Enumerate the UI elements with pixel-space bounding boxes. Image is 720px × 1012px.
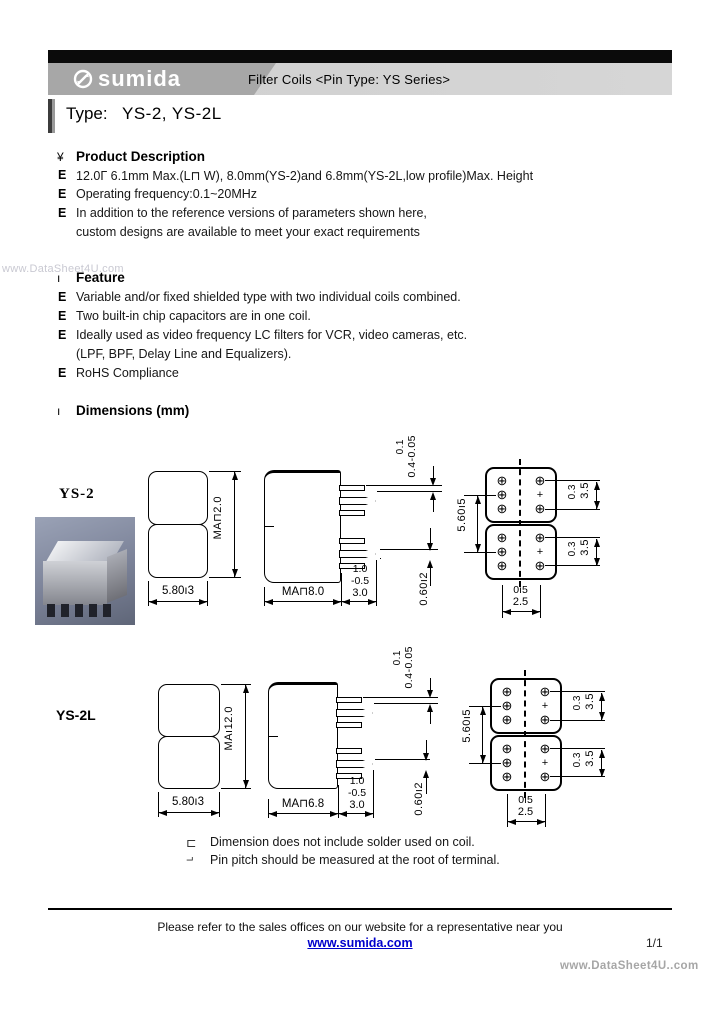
pin-marker-icon: ⊕ [500,685,514,698]
product-description-heading: ¥ Product Description [57,149,205,164]
dim-line-body-width [269,813,338,814]
ext-line [209,577,241,578]
watermark-bottom-right: www.DataSheet4U..com [560,960,699,972]
ys2-span-top: 3.5 [580,482,591,499]
dim-line [482,707,483,763]
dim-line [601,750,602,777]
dim-line-pitch [508,821,545,822]
pin-marker-icon: ⊕ [495,502,509,515]
ext-line [373,770,374,818]
sumida-logo-icon [72,68,94,95]
ys2-label: YS-2 [59,486,95,503]
arrowhead-up [427,704,433,712]
feature-text-5: RoHS Compliance [76,366,179,380]
arrowhead-up [427,560,433,568]
photo-front-face [43,561,107,605]
ys2l-span-top-tol: 0.3 [573,695,583,710]
dim-line-height [245,685,246,788]
ys2-front-width: 5.80ı3 [146,585,210,597]
pin-marker-icon: ⊕ [495,559,509,572]
ys2l-pitch-tol: 0ı5 [505,795,546,806]
bullet-icon: E [58,366,76,380]
bullet-icon [58,225,76,239]
ys2l-span-top: 3.5 [585,693,596,710]
bullet-icon: E [58,187,76,201]
photo-pin [47,604,55,617]
bullet-icon: E [58,206,76,220]
bullet-icon [58,347,76,361]
pd-text-1: 12.0Γ 6.1mm Max.(L⊓ W), 8.0mm(YS-2)and 6… [76,168,533,183]
section-title: Dimensions (mm) [76,403,189,418]
pd-text-2: Operating frequency:0.1~20MHz [76,187,257,201]
ys2l-front-height: MAı12.0 [224,706,235,750]
leader-line [430,568,431,586]
ext-line [545,480,600,481]
footer-message: Please refer to the sales offices on our… [0,920,720,934]
terminal-pin [339,510,365,516]
ext-line [469,763,501,764]
dim-line-body-width [265,601,341,602]
bullet-icon: E [58,168,76,183]
section-bullet-icon: ¥ [57,150,76,164]
ys2l-front-coil-bottom [158,736,220,789]
ys2-front-coil-top [148,471,208,525]
terminal-pin [339,538,365,544]
ys2-side-width: MA⊓8.0 [266,586,340,598]
ys2l-side-width: MA⊓6.8 [268,798,338,810]
dim-line [596,482,597,509]
dim-line-pitch [503,611,540,612]
header-banner: sumida Filter Coils <Pin Type: YS Series… [48,63,672,95]
type-label: Type: [66,104,108,124]
feature-line-2: ETwo built-in chip capacitors are in one… [58,309,311,323]
footer-divider [48,908,672,910]
feature-line-4: (LPF, BPF, Delay Line and Equalizers). [58,347,291,361]
ys2l-span-bot: 3.5 [585,750,596,767]
dim-line-pin-length [339,813,373,814]
ext-line [221,788,251,789]
note-1: ⊏ Dimension does not include solder used… [186,835,475,850]
pd-text-3: In addition to the reference versions of… [76,206,427,220]
ext-line [550,720,605,721]
leader-line [430,712,431,724]
arrowhead-down [430,478,436,486]
pin-marker-icon: ⊕ [500,770,514,783]
ys2-pitch-tol: 0ı5 [500,585,541,596]
terminal-pin [336,748,362,754]
dim-line-width [149,601,207,602]
pin-marker-icon: ⊕ [500,713,514,726]
coil-split-line [268,736,278,737]
pin-cross-icon: + [540,701,550,711]
component-photo [35,517,135,625]
ext-line [464,552,496,553]
ys2l-pin-len-plus: 1.0 [341,776,373,787]
dim-line [596,539,597,566]
bullet-icon: E [58,328,76,342]
pd-line-3: EIn addition to the reference versions o… [58,206,427,220]
ext-line [545,509,600,510]
dim-line [601,693,602,720]
photo-pin [89,604,97,617]
arrowhead-up [430,492,436,500]
pin-cross-icon: + [535,490,545,500]
type-accent-bar [48,99,55,133]
ys2-pin-thickness: 0.60ı2 [419,572,430,606]
feature-line-5: ERoHS Compliance [58,366,179,380]
ext-line [550,691,605,692]
pin-marker-icon: ⊕ [500,756,514,769]
pd-line-1: E12.0Γ 6.1mm Max.(L⊓ W), 8.0mm(YS-2)and … [58,168,533,183]
feature-heading: ı Feature [57,270,125,285]
note-bullet-glyph: ⌐ [186,853,193,867]
arrowhead-down [427,543,433,551]
ys2-pitch: 2.5 [500,597,541,609]
arrowhead-down [423,753,429,761]
section-bullet-icon: ı [57,404,76,418]
pin-marker-icon: ⊕ [500,699,514,712]
ys2l-pitch: 2.5 [505,807,546,819]
feature-text-2: Two built-in chip capacitors are in one … [76,309,311,323]
ext-line [380,558,381,559]
terminal-pin-pointed [336,709,373,717]
note-2-text: Pin pitch should be measured at the root… [210,853,500,867]
ext-line [545,565,600,566]
ys2l-pin-tol-lower: 0.4-0.05 [404,646,415,689]
dim-line-width [159,812,219,813]
section-title: Feature [76,270,125,285]
leader-line [433,500,434,512]
feature-text-4: (LPF, BPF, Delay Line and Equalizers). [76,347,291,361]
dim-line-pin-length [342,601,376,602]
feature-text-3: Ideally used as video frequency LC filte… [76,328,467,342]
ys2l-front-width: 5.80ı3 [156,796,220,808]
photo-pin [61,604,69,617]
pd-line-4: custom designs are available to meet you… [58,225,420,239]
terminal-pin [336,722,362,728]
section-bullet-icon: ı [57,271,76,285]
ys2l-span-bot-tol: 0.3 [573,752,583,767]
ys2-bottom-height: 5.60ı5 [457,498,468,532]
feature-text-1: Variable and/or fixed shielded type with… [76,290,461,304]
ys2l-pin-len-minus: -0.5 [341,788,373,799]
ext-line [550,776,605,777]
ys2l-bottom-height: 5.60ı5 [462,709,473,743]
ext-line [545,537,600,538]
header-top-bar [48,50,672,63]
page-number: 1/1 [646,936,663,950]
center-dashed-line [519,459,521,587]
pin-marker-icon: ⊕ [495,488,509,501]
note-2: ⌐ Pin pitch should be measured at the ro… [186,853,500,867]
ys2l-side-body [268,682,338,789]
product-line-title: Filter Coils <Pin Type: YS Series> [248,72,450,87]
ys2-pin-len-plus: 1.0 [344,564,376,575]
ext-line [550,748,605,749]
ext-line [376,560,377,606]
terminal-pin-pointed [339,497,376,505]
coil-split-line [264,526,274,527]
pd-text-4: custom designs are available to meet you… [76,225,420,239]
pin-cross-icon: + [540,758,550,768]
ys2l-label: YS-2L [56,707,96,723]
pin-marker-icon: ⊕ [495,474,509,487]
ys2-span-bot: 3.5 [580,539,591,556]
pd-line-2: EOperating frequency:0.1~20MHz [58,187,257,201]
ys2-span-top-tol: 0.3 [568,484,578,499]
terminal-pin [336,697,362,703]
pin-marker-icon: ⊕ [500,742,514,755]
brand-name: sumida [98,66,181,92]
bullet-icon: E [58,309,76,323]
dim-line-height [234,472,235,577]
photo-pin [103,604,111,617]
ys2-pin-len-minus: -0.5 [344,576,376,587]
sumida-website-link[interactable]: www.sumida.com [0,936,720,950]
arrowhead-down [427,690,433,698]
feature-line-3: EIdeally used as video frequency LC filt… [58,328,467,342]
note-bullet-icon: ⊏ [186,835,210,850]
pin-marker-icon: ⊕ [495,531,509,544]
type-value: YS-2, YS-2L [122,104,222,124]
terminal-pin [339,485,365,491]
ys2-pin-tol-lower: 0.4-0.05 [407,435,418,478]
bullet-icon: E [58,290,76,304]
photo-pin [75,604,83,617]
dim-line [477,496,478,552]
ys2l-pin-tol-upper: 0.1 [393,650,403,665]
ys2l-pin-thickness: 0.60ı2 [414,782,425,816]
note-1-text: Dimension does not include solder used o… [210,835,475,850]
ys2-pin-tol-upper: 0.1 [396,439,406,454]
note-bullet-icon: ⌐ [186,853,210,867]
ys2-side-body [264,470,341,583]
dimensions-heading: ı Dimensions (mm) [57,403,189,418]
arrowhead-up [423,770,429,778]
pin-cross-icon: + [535,547,545,557]
ys2l-front-coil-top [158,684,220,737]
pin-marker-icon: ⊕ [495,545,509,558]
ext-line [375,759,430,760]
center-dashed-line [524,670,526,798]
header-logo-block: sumida [48,63,276,95]
feature-line-1: EVariable and/or fixed shielded type wit… [58,290,461,304]
terminal-pin-pointed [336,760,373,768]
ys2-span-bot-tol: 0.3 [568,541,578,556]
ys2-front-coil-bottom [148,524,208,578]
terminal-pin-pointed [339,550,376,558]
ys2-front-height: MA⊓2.0 [213,496,224,539]
photo-side-face [107,549,127,603]
section-title: Product Description [76,149,205,164]
leader-line [426,778,427,794]
